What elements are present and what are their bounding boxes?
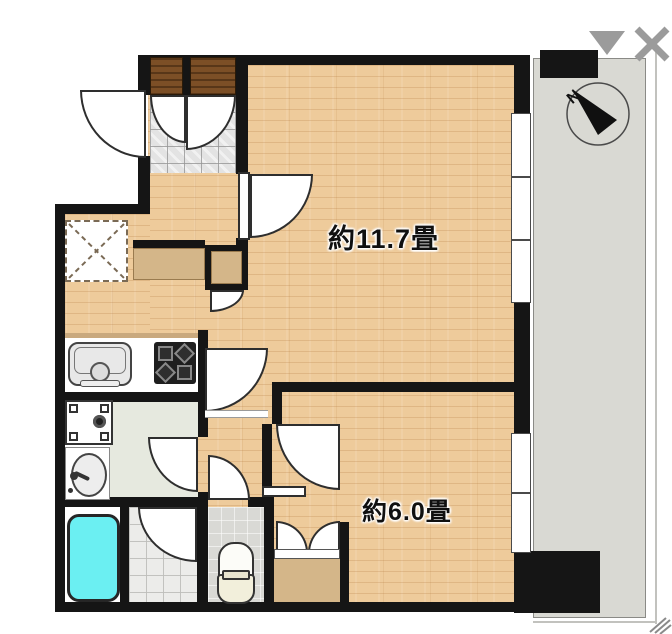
- bathtub: [67, 514, 120, 602]
- living-room-size-label: 約11.7畳: [328, 217, 439, 256]
- living-window-mullion-1: [511, 176, 531, 178]
- toilet-seat: [222, 570, 250, 580]
- wall-bath-right: [197, 507, 208, 602]
- corridor-sliding-track: [205, 410, 268, 418]
- wall-right-upper: [514, 55, 530, 115]
- living-door-leaf: [238, 172, 250, 240]
- wall-bath-divider: [120, 507, 129, 602]
- closet-interior: [274, 559, 340, 602]
- toilet: [216, 542, 256, 606]
- resize-grip-icon: [648, 614, 672, 634]
- kitchen-counter-edge: [65, 333, 200, 338]
- closet-sill: [274, 549, 340, 559]
- bedroom-window-mullion: [511, 492, 531, 494]
- counter-step-wall: [133, 240, 205, 248]
- wall-left-lower: [55, 204, 65, 612]
- compass-north-label: N: [564, 87, 584, 107]
- wall-bedroom-divider: [272, 382, 514, 392]
- drain-circle: [93, 415, 106, 428]
- wall-right-mid: [514, 303, 530, 435]
- refrigerator-space: [65, 220, 128, 282]
- floorplan-viewer: N 約11.7畳 約6.0畳: [0, 0, 672, 634]
- wall-left-upper-b: [138, 156, 150, 214]
- wall-entrance-post: [183, 57, 190, 95]
- wall-toilet-right: [264, 497, 274, 612]
- compass-north-icon: N: [557, 76, 639, 154]
- living-window-mullion-2: [511, 239, 531, 241]
- bedroom-door-leaf: [262, 486, 306, 497]
- bedroom-size-label: 約6.0畳: [362, 492, 452, 528]
- wall-toilet-top: [248, 497, 264, 507]
- wall-closet-right: [340, 522, 349, 612]
- wall-entrance-right: [236, 55, 248, 174]
- wall-bottom: [55, 602, 530, 612]
- shoe-cabinet-panel-right: [190, 57, 236, 95]
- triangle-down-icon[interactable]: [588, 30, 626, 56]
- balcony-outer-rail-line: [655, 52, 657, 624]
- washing-machine-pan: [65, 400, 113, 445]
- counter-step: [133, 248, 205, 280]
- balcony-outer-rail-line-bottom: [533, 621, 657, 623]
- close-icon[interactable]: [633, 26, 671, 62]
- wall-left-upper-a: [138, 55, 150, 95]
- wall-step: [55, 204, 150, 214]
- pipe-space-interior: [211, 251, 242, 284]
- kitchen-stove: [154, 342, 196, 384]
- wall-corridor-right: [262, 424, 272, 488]
- sink-drain: [90, 362, 110, 382]
- washbasin-cabinet: [65, 447, 110, 500]
- shoe-cabinet-panel-left: [150, 57, 183, 95]
- wall-bedroom-stub: [272, 382, 282, 424]
- living-balcony-window: [511, 113, 531, 303]
- kitchen-sink: [68, 342, 132, 386]
- front-door-swing-arc: [80, 90, 146, 158]
